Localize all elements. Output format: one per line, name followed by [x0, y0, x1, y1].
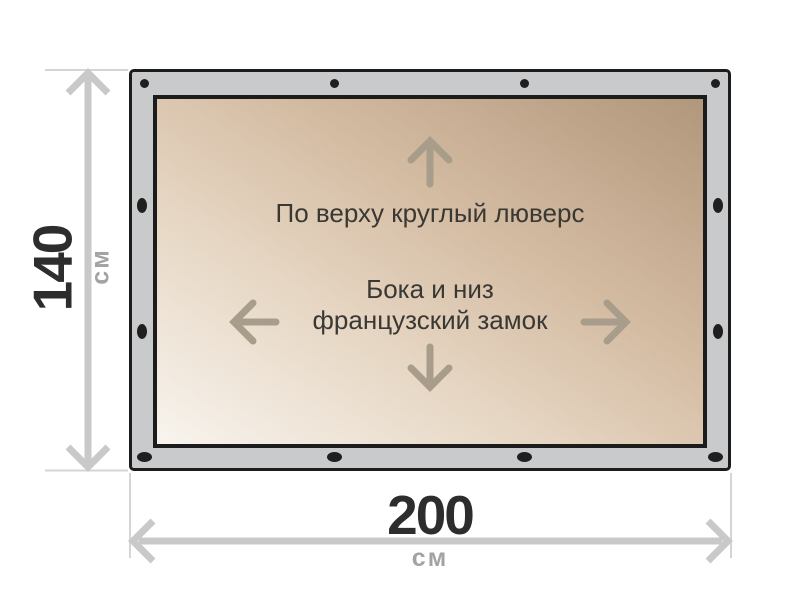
grommet-round-icon [520, 79, 529, 88]
grommet-slot-icon [713, 324, 723, 339]
sides-bottom-note-line1: Бока и низ [230, 274, 630, 305]
grommet-slot-icon [137, 198, 147, 213]
grommet-slot-icon [327, 452, 342, 462]
tarp-fabric [153, 95, 707, 448]
width-unit: см [330, 546, 530, 571]
grommet-round-icon [330, 79, 339, 88]
tarp-frame [129, 69, 731, 471]
grommet-slot-icon [517, 452, 532, 462]
grommet-round-icon [711, 79, 720, 88]
height-unit: см [89, 227, 114, 307]
width-value: 200 [330, 488, 530, 543]
grommet-slot-icon [137, 452, 152, 462]
sides-bottom-note: Бока и низ французский замок [230, 274, 630, 336]
sides-bottom-note-line2: французский замок [230, 305, 630, 336]
grommet-slot-icon [708, 452, 723, 462]
tarp-dimension-diagram: По верху круглый люверс Бока и низ франц… [0, 0, 800, 600]
grommet-round-icon [140, 79, 149, 88]
grommet-slot-icon [137, 324, 147, 339]
top-edge-note: По верху круглый люверс [230, 198, 630, 229]
height-value: 140 [26, 206, 81, 332]
grommet-slot-icon [713, 198, 723, 213]
